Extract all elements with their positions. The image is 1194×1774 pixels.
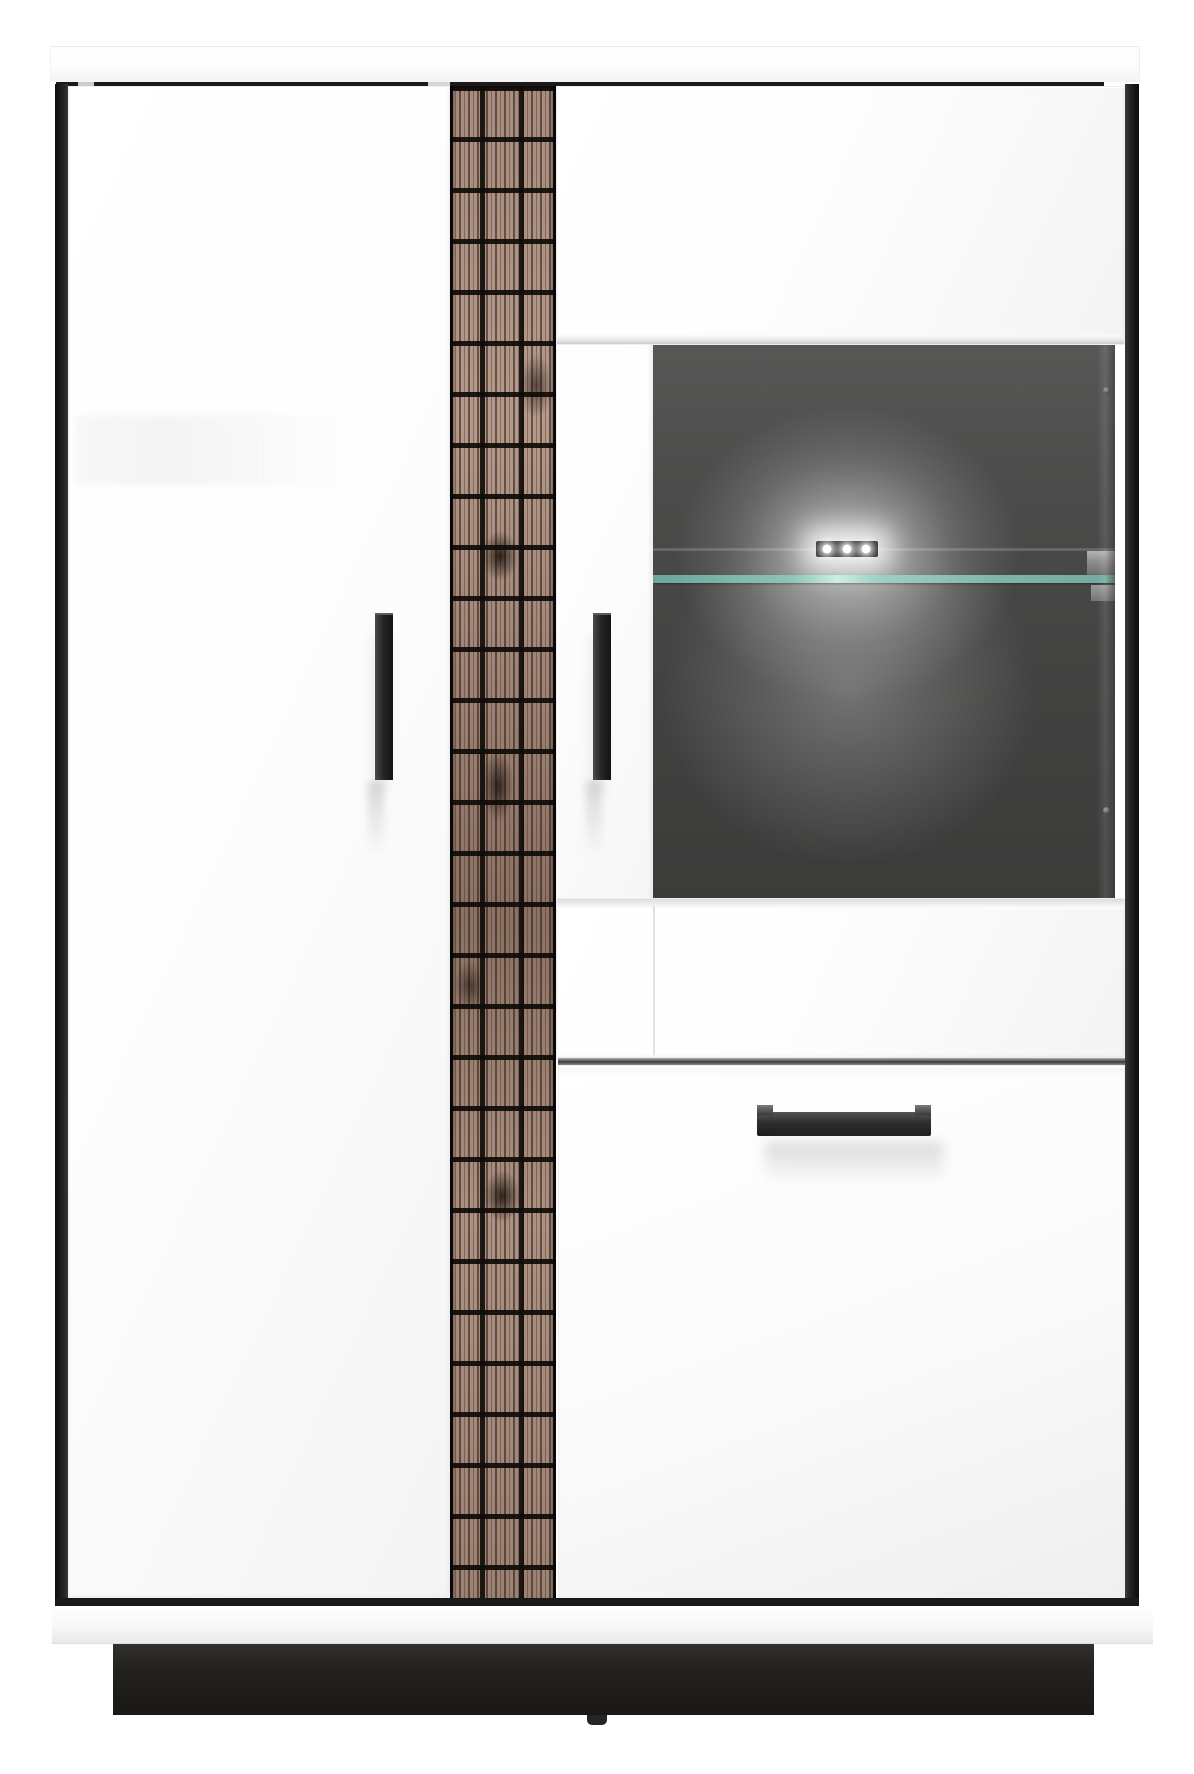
led-dot [822, 544, 832, 554]
handle-shadow [368, 782, 384, 870]
hinge-screw [1103, 807, 1110, 814]
glass-shelf-surface-line [653, 548, 1115, 551]
cabinet-left-edge [55, 84, 68, 1600]
product-photo-display-cabinet [0, 0, 1194, 1774]
wood-mosaic-strip [450, 86, 556, 1602]
glass-shelf-edge [653, 575, 1115, 583]
glass-door-handle [593, 613, 611, 780]
left-door-handle [375, 613, 393, 780]
center-foot [587, 1715, 607, 1725]
glass-edge-reflection [1097, 345, 1115, 898]
led-dot [861, 544, 871, 554]
led-light-bar [816, 541, 878, 557]
glass-door-top-panel [556, 86, 1125, 345]
bottom-shadow-gap [55, 1598, 1139, 1606]
black-plinth [113, 1644, 1094, 1715]
door-reflection-smudge [75, 415, 385, 485]
led-glow-lower [653, 345, 1115, 898]
door-drawer-separator [558, 1058, 1125, 1065]
handle-shadow [586, 782, 602, 870]
left-door [68, 86, 450, 1598]
drawer-handle [757, 1112, 931, 1136]
cabinet-top-panel [50, 46, 1140, 82]
base-rail [52, 1606, 1153, 1644]
led-dot [842, 544, 852, 554]
hinge-screw [1103, 387, 1110, 394]
glass-door-bottom-panel [556, 898, 1125, 1058]
panel-bevel-joint [653, 905, 655, 1055]
glass-display-window [653, 345, 1115, 898]
drawer-handle-shadow [765, 1142, 943, 1194]
cabinet-right-edge [1125, 84, 1139, 1600]
